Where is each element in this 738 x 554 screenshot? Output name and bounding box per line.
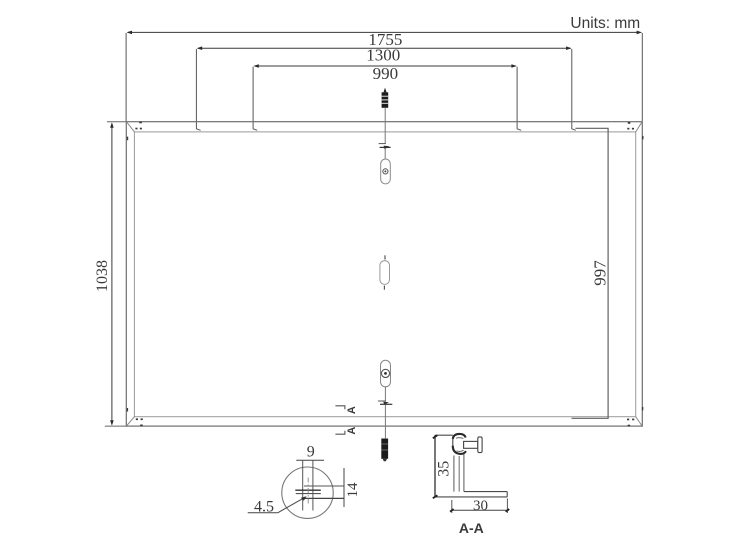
svg-text:30: 30 xyxy=(473,498,488,514)
svg-text:990: 990 xyxy=(373,64,399,83)
svg-text:A-A: A-A xyxy=(459,520,484,536)
svg-text:9: 9 xyxy=(307,444,315,461)
svg-text:14: 14 xyxy=(345,482,361,498)
svg-text:1038: 1038 xyxy=(94,260,111,292)
svg-text:Units: mm: Units: mm xyxy=(570,15,640,32)
svg-text:A: A xyxy=(346,406,358,414)
svg-text:997: 997 xyxy=(590,260,609,286)
svg-text:1300: 1300 xyxy=(366,45,400,64)
svg-text:A: A xyxy=(346,427,358,435)
svg-text:35: 35 xyxy=(435,461,452,477)
